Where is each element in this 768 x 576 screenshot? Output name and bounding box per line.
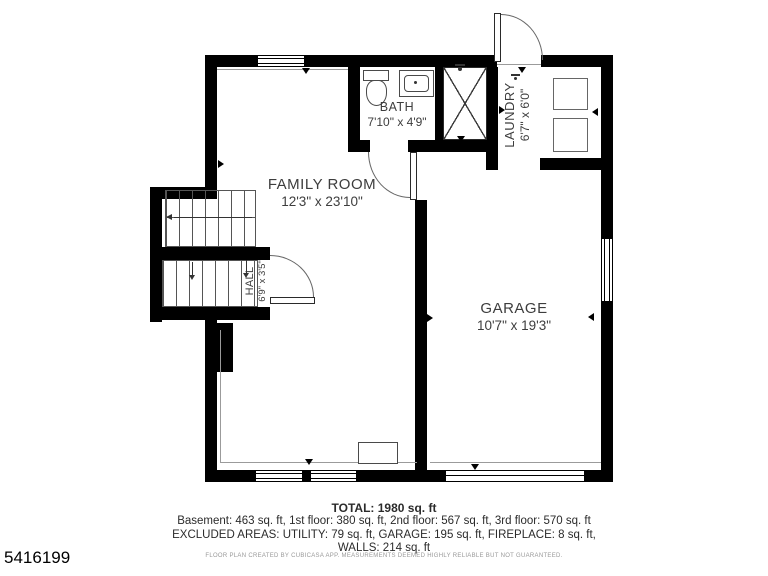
room-name: FAMILY ROOM bbox=[232, 176, 412, 194]
garage-floor-edge bbox=[430, 462, 601, 463]
staircase-down-arrow-icon-1 bbox=[189, 275, 195, 280]
room-name: BATH bbox=[347, 100, 447, 115]
listing-id: 5416199 bbox=[4, 548, 70, 568]
shower bbox=[443, 67, 487, 140]
window-bottom-right bbox=[310, 470, 357, 482]
area-summary: TOTAL: 1980 sq. ft Basement: 463 sq. ft,… bbox=[0, 501, 768, 556]
wall-laundry-left bbox=[486, 67, 498, 170]
door-marker bbox=[471, 464, 479, 470]
window-garage-right bbox=[601, 238, 613, 302]
room-label-hall: HALL 6'9" x 3'5" bbox=[244, 251, 270, 311]
room-dims: 7'10" x 4'9" bbox=[347, 115, 447, 129]
staircase-up-arrow-icon bbox=[166, 214, 172, 220]
room-label-laundry: LAUNDRY 6'7" x 6'0" bbox=[502, 73, 536, 157]
staircase-up-arrow-line bbox=[174, 217, 252, 218]
wall-right-upper bbox=[601, 55, 613, 238]
room-label-bath: BATH 7'10" x 4'9" bbox=[347, 100, 447, 129]
shower-knob-icon bbox=[458, 67, 462, 71]
wall-bath-bottom-a bbox=[348, 140, 370, 152]
wall-garage-left bbox=[415, 200, 427, 482]
room-dims: 6'9" x 3'5" bbox=[257, 251, 268, 311]
room-label-family-room: FAMILY ROOM 12'3" x 23'10" bbox=[232, 176, 412, 210]
room-dims: 10'7" x 19'3" bbox=[424, 318, 604, 334]
room-dims: 12'3" x 23'10" bbox=[232, 194, 412, 210]
disclaimer: FLOOR PLAN CREATED BY CUBICASA APP. MEAS… bbox=[0, 553, 768, 559]
floor-breakdown: Basement: 463 sq. ft, 1st floor: 380 sq.… bbox=[0, 515, 768, 529]
total-area: TOTAL: 1980 sq. ft bbox=[0, 501, 768, 515]
staircase-down-arrow-stem-1 bbox=[192, 262, 193, 275]
shower-head-icon bbox=[455, 64, 465, 66]
entry-door-leaf bbox=[494, 13, 501, 62]
excluded-areas: EXCLUDED AREAS: UTILITY: 79 sq. ft, GARA… bbox=[0, 529, 768, 543]
wall-bottom-d bbox=[585, 470, 613, 482]
room-label-garage: GARAGE 10'7" x 19'3" bbox=[424, 300, 604, 334]
wall-top-b bbox=[305, 55, 497, 67]
wall-top-a bbox=[205, 55, 257, 67]
door-marker bbox=[302, 68, 310, 74]
wall-bottom-c bbox=[357, 470, 445, 482]
hall-door-arc bbox=[270, 255, 314, 297]
door-marker bbox=[592, 108, 598, 116]
window-bottom-left bbox=[255, 470, 303, 482]
entry-door-arc bbox=[501, 14, 543, 60]
room-dims: 6'7" x 6'0" bbox=[518, 73, 532, 157]
wall-bath-bottom-b bbox=[408, 140, 498, 152]
hall-door-leaf bbox=[270, 297, 315, 304]
door-marker bbox=[305, 459, 313, 465]
room-name: LAUNDRY bbox=[502, 73, 518, 157]
floor-plan-page: FAMILY ROOM 12'3" x 23'10" BATH 7'10" x … bbox=[0, 0, 768, 576]
wall-laundry-bottom bbox=[540, 158, 601, 170]
room-name: HALL bbox=[244, 251, 257, 311]
washer bbox=[553, 78, 588, 110]
sink-faucet-icon bbox=[414, 81, 417, 84]
dryer bbox=[553, 118, 588, 152]
hearth bbox=[358, 442, 398, 464]
wall-left-lower bbox=[205, 310, 217, 482]
window-top bbox=[257, 55, 305, 67]
door-marker bbox=[457, 136, 465, 142]
garage-door bbox=[445, 470, 585, 482]
wall-bottom-b bbox=[303, 470, 310, 482]
entry-threshold bbox=[497, 64, 541, 65]
floor-edge-top bbox=[217, 69, 348, 70]
wall-left-upper bbox=[205, 67, 217, 199]
floor-edge-left bbox=[220, 330, 221, 463]
door-marker bbox=[218, 160, 224, 168]
room-name: GARAGE bbox=[424, 300, 604, 318]
